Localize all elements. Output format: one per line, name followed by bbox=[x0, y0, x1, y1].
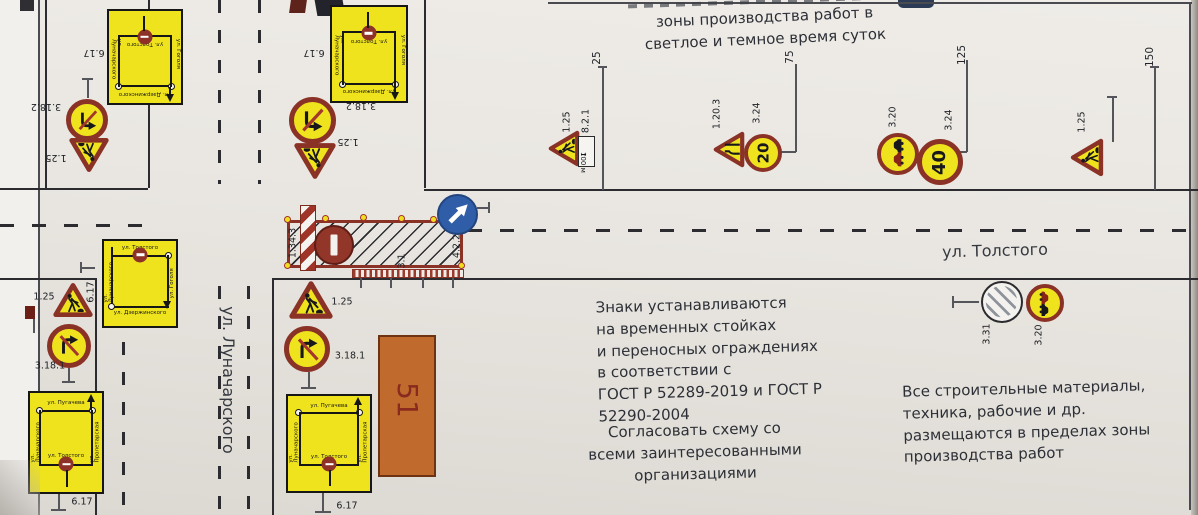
centerline-tolstogo-east bbox=[468, 229, 1190, 232]
sign-label-617-i: 6.17 bbox=[336, 501, 357, 511]
sign-label-125-f: 1.25 bbox=[33, 292, 54, 302]
sign-label-1343: 1.34.3 bbox=[288, 228, 298, 258]
zone-length-plate-821: 100 м ↑ bbox=[578, 136, 595, 167]
detour-street-top: ул. Пугачева bbox=[30, 401, 102, 407]
sign-label-617-g: 6.17 bbox=[86, 281, 96, 302]
sign-label-3181-f: 3.18.1 bbox=[35, 361, 65, 371]
detour-top-line bbox=[299, 412, 360, 414]
dimension-line-125 bbox=[966, 60, 968, 152]
stand-a-tick bbox=[82, 78, 93, 80]
sign-mast-tick-right bbox=[1107, 96, 1117, 98]
dimension-value-150: 150 bbox=[1145, 47, 1156, 67]
detour-node bbox=[108, 303, 115, 310]
end-restrictions-sign-331 bbox=[981, 281, 1023, 323]
stand-h-tick bbox=[301, 387, 316, 389]
road-edge-tolstogo-south-west bbox=[0, 278, 95, 280]
barrier-chevron-1343 bbox=[300, 205, 316, 271]
road-works-sign-125-h bbox=[289, 280, 333, 320]
dimension-line-150 bbox=[1154, 66, 1156, 190]
sign-label-125-h: 1.25 bbox=[331, 297, 352, 307]
signal-lamp-5 bbox=[430, 216, 437, 223]
detour-scheme-sign-617-north-b: ул. Дзержинского ул. Толстого ул. Гоголя… bbox=[330, 5, 408, 103]
detour-street-left: ул. Луначарского bbox=[31, 415, 42, 463]
road-works-sign-125-a bbox=[69, 137, 109, 173]
road-works-sign-125-b bbox=[294, 142, 336, 180]
road-works-sign-125-g4 bbox=[1070, 139, 1105, 177]
fence-leg-3 bbox=[422, 278, 424, 288]
photo-corner-shadow bbox=[0, 460, 40, 515]
detour-street-top: ул. Пугачева bbox=[288, 404, 370, 410]
detour-no-entry-icon bbox=[133, 247, 148, 262]
stand-f bbox=[68, 368, 70, 382]
road-works-sign-125-g1 bbox=[548, 131, 581, 167]
pair-stand bbox=[952, 301, 979, 303]
signal-lamp-4 bbox=[398, 215, 405, 222]
sign-label-324-b: 3.24 bbox=[944, 109, 954, 130]
detour-street-right: ул. Пролетарская bbox=[358, 417, 369, 463]
frame-right bbox=[1189, 2, 1191, 510]
detour-street-top: ул. Дзержинского bbox=[332, 88, 406, 94]
sign-label-125-g4: 1.25 bbox=[1077, 111, 1087, 132]
photo-artifact-1 bbox=[20, 0, 34, 11]
sign-label-617-a: 6.17 bbox=[83, 47, 104, 57]
road-edge-tolstogo-north-west bbox=[0, 188, 148, 190]
lane-dash-north-2 bbox=[258, 0, 261, 184]
stand-i bbox=[322, 493, 324, 512]
detour-no-entry-icon bbox=[362, 26, 377, 41]
fence-leg-2 bbox=[390, 278, 392, 288]
detour-stem-down bbox=[66, 470, 68, 487]
detour-scheme-sign-617-west: ул. Толстого ул. Дзержинского ул. Лунача… bbox=[102, 239, 178, 328]
signal-lamp-1 bbox=[284, 216, 291, 223]
dimension-line-25 bbox=[602, 66, 604, 190]
fence-leg-4 bbox=[452, 278, 454, 288]
detour-top-line bbox=[342, 83, 397, 85]
dimension-line-75 bbox=[795, 64, 797, 152]
dimension-value-75: 75 bbox=[785, 50, 796, 63]
detour-top-line bbox=[39, 410, 92, 412]
detour-street-right: ул. Пролетарская bbox=[90, 415, 101, 463]
detour-bottom-line bbox=[111, 306, 169, 308]
speed-limit-value: 40 bbox=[930, 149, 951, 174]
road-edge-tolstogo-north-east bbox=[424, 189, 1198, 191]
sign-label-331: 3.31 bbox=[982, 323, 992, 344]
signal-lamp-8 bbox=[458, 262, 465, 269]
photo-right-edge bbox=[1191, 0, 1198, 515]
stand-j-tick bbox=[51, 509, 66, 511]
street-label-tolstogo: ул. Толстого bbox=[942, 242, 1048, 261]
road-edge-south-leg-b bbox=[272, 278, 274, 515]
stand-j bbox=[58, 494, 60, 510]
speed-limit-value: 20 bbox=[754, 143, 772, 164]
temporary-fence bbox=[352, 269, 464, 278]
sign-label-324-a: 3.24 bbox=[752, 102, 762, 123]
sign-label-1203: 1.20.3 bbox=[712, 99, 722, 129]
blue-sign-stand-tick bbox=[488, 202, 490, 213]
no-overtaking-sign-320-b bbox=[1026, 284, 1064, 322]
street-label-lunacharskogo: ул. Луначарского bbox=[220, 306, 236, 454]
dimension-tick-25 bbox=[598, 66, 607, 68]
note-materials: Все строительные материалы, техника, раб… bbox=[902, 374, 1189, 468]
stand-g bbox=[80, 267, 95, 269]
detour-street-left: ул. Гоголя bbox=[175, 39, 181, 83]
top-note: зоны производства работ в светлое и темн… bbox=[599, 0, 931, 58]
detour-street-right: ул. Луначарского bbox=[110, 39, 121, 83]
building-number: 51 bbox=[393, 382, 421, 418]
sign-label-3182-a: 3.18.2 bbox=[31, 101, 61, 111]
sign-label-3181-h: 3.18.1 bbox=[335, 351, 365, 361]
speed-limit-20-sign-324: 20 bbox=[744, 134, 782, 172]
sign-label-821: 8.2.1 bbox=[581, 109, 591, 133]
photo-artifact-2 bbox=[289, 0, 307, 13]
sign-label-125-b: 1.25 bbox=[337, 136, 358, 146]
detour-street-left: ул. Гоголя bbox=[400, 35, 406, 80]
stand-f-tick bbox=[62, 381, 75, 383]
sign-label-617-j: 6.17 bbox=[71, 497, 92, 507]
note-install: Знаки устанавливаются на временных стойк… bbox=[595, 290, 868, 428]
sign-label-125-g1: 1.25 bbox=[562, 111, 572, 132]
detour-street-left: ул. Луначарского bbox=[289, 417, 300, 463]
road-edge-north-leg-c bbox=[424, 0, 426, 188]
no-left-turn-sign-3182-a bbox=[66, 99, 108, 141]
detour-street-top: ул. Дзержинского bbox=[109, 90, 181, 96]
signal-lamp-3 bbox=[360, 214, 367, 221]
speed-limit-40-sign-324: 40 bbox=[917, 139, 963, 185]
lane-dash-south-3 bbox=[247, 286, 250, 515]
detour-stem-down bbox=[143, 16, 145, 32]
detour-street-right: ул. Луначарского bbox=[333, 35, 344, 80]
detour-stem-down bbox=[367, 12, 369, 28]
sign-label-320-a: 3.20 bbox=[888, 106, 898, 127]
road-narrows-sign-1203 bbox=[713, 132, 746, 168]
detour-no-entry-icon bbox=[138, 29, 153, 44]
no-overtaking-sign-320 bbox=[877, 133, 919, 175]
detour-stem-down bbox=[329, 470, 331, 486]
detour-scheme-sign-617-north-a: ул. Дзержинского ул. Толстого ул. Гоголя… bbox=[107, 9, 183, 105]
stand-i-tick bbox=[315, 511, 331, 513]
sign-label-31: 3.1 bbox=[397, 253, 407, 268]
stand-g-tick bbox=[80, 262, 82, 273]
dimension-value-125: 125 bbox=[957, 45, 968, 65]
sign-label-320-b: 3.20 bbox=[1034, 324, 1044, 345]
traffic-scheme-photo: 25 75 125 150 1.34.3 3.1 4.2.2 ул. Дзерж… bbox=[0, 0, 1198, 515]
no-entry-sign-31 bbox=[314, 225, 354, 265]
fence-leg-1 bbox=[360, 278, 362, 288]
no-right-turn-sign-3181-h bbox=[284, 326, 330, 372]
pair-stand-tick bbox=[952, 296, 954, 308]
plate-arrow-icon: ↑ bbox=[579, 152, 587, 158]
lane-dash-north-1 bbox=[218, 0, 221, 184]
centerline-tolstogo-west bbox=[0, 224, 142, 227]
detour-top-line bbox=[118, 85, 171, 87]
road-edge-tolstogo-south-east bbox=[272, 278, 1198, 280]
stand-h bbox=[308, 372, 310, 388]
flag-marker bbox=[25, 306, 35, 319]
note-agree: Согласовать схему со всеми заинтересован… bbox=[569, 417, 821, 489]
sign-mast-right bbox=[1112, 96, 1114, 142]
sign-label-125-a: 1.25 bbox=[45, 152, 66, 162]
detour-scheme-sign-617-south-i: ул. Пугачева ул. Толстого ул. Луначарско… bbox=[286, 394, 372, 493]
detour-street-left: ул. Луначарского bbox=[104, 260, 115, 303]
signal-lamp-2 bbox=[322, 215, 329, 222]
no-entry-bar bbox=[331, 235, 338, 256]
sign-label-3182-b: 3.18.2 bbox=[346, 100, 376, 110]
no-left-turn-sign-3182-b bbox=[289, 97, 336, 144]
white-arrow-icon bbox=[439, 196, 476, 233]
stand-a bbox=[87, 78, 89, 98]
detour-street-right: ул. Гоголя bbox=[170, 261, 176, 298]
signal-lamp-7 bbox=[284, 262, 291, 269]
sign-label-617-b: 6.17 bbox=[303, 47, 324, 57]
sign-label-422: 4.2.2 bbox=[452, 234, 462, 258]
detour-street-bottom: ул. Дзержинского bbox=[104, 311, 176, 317]
obstacle-avoid-sign-422 bbox=[437, 194, 478, 235]
